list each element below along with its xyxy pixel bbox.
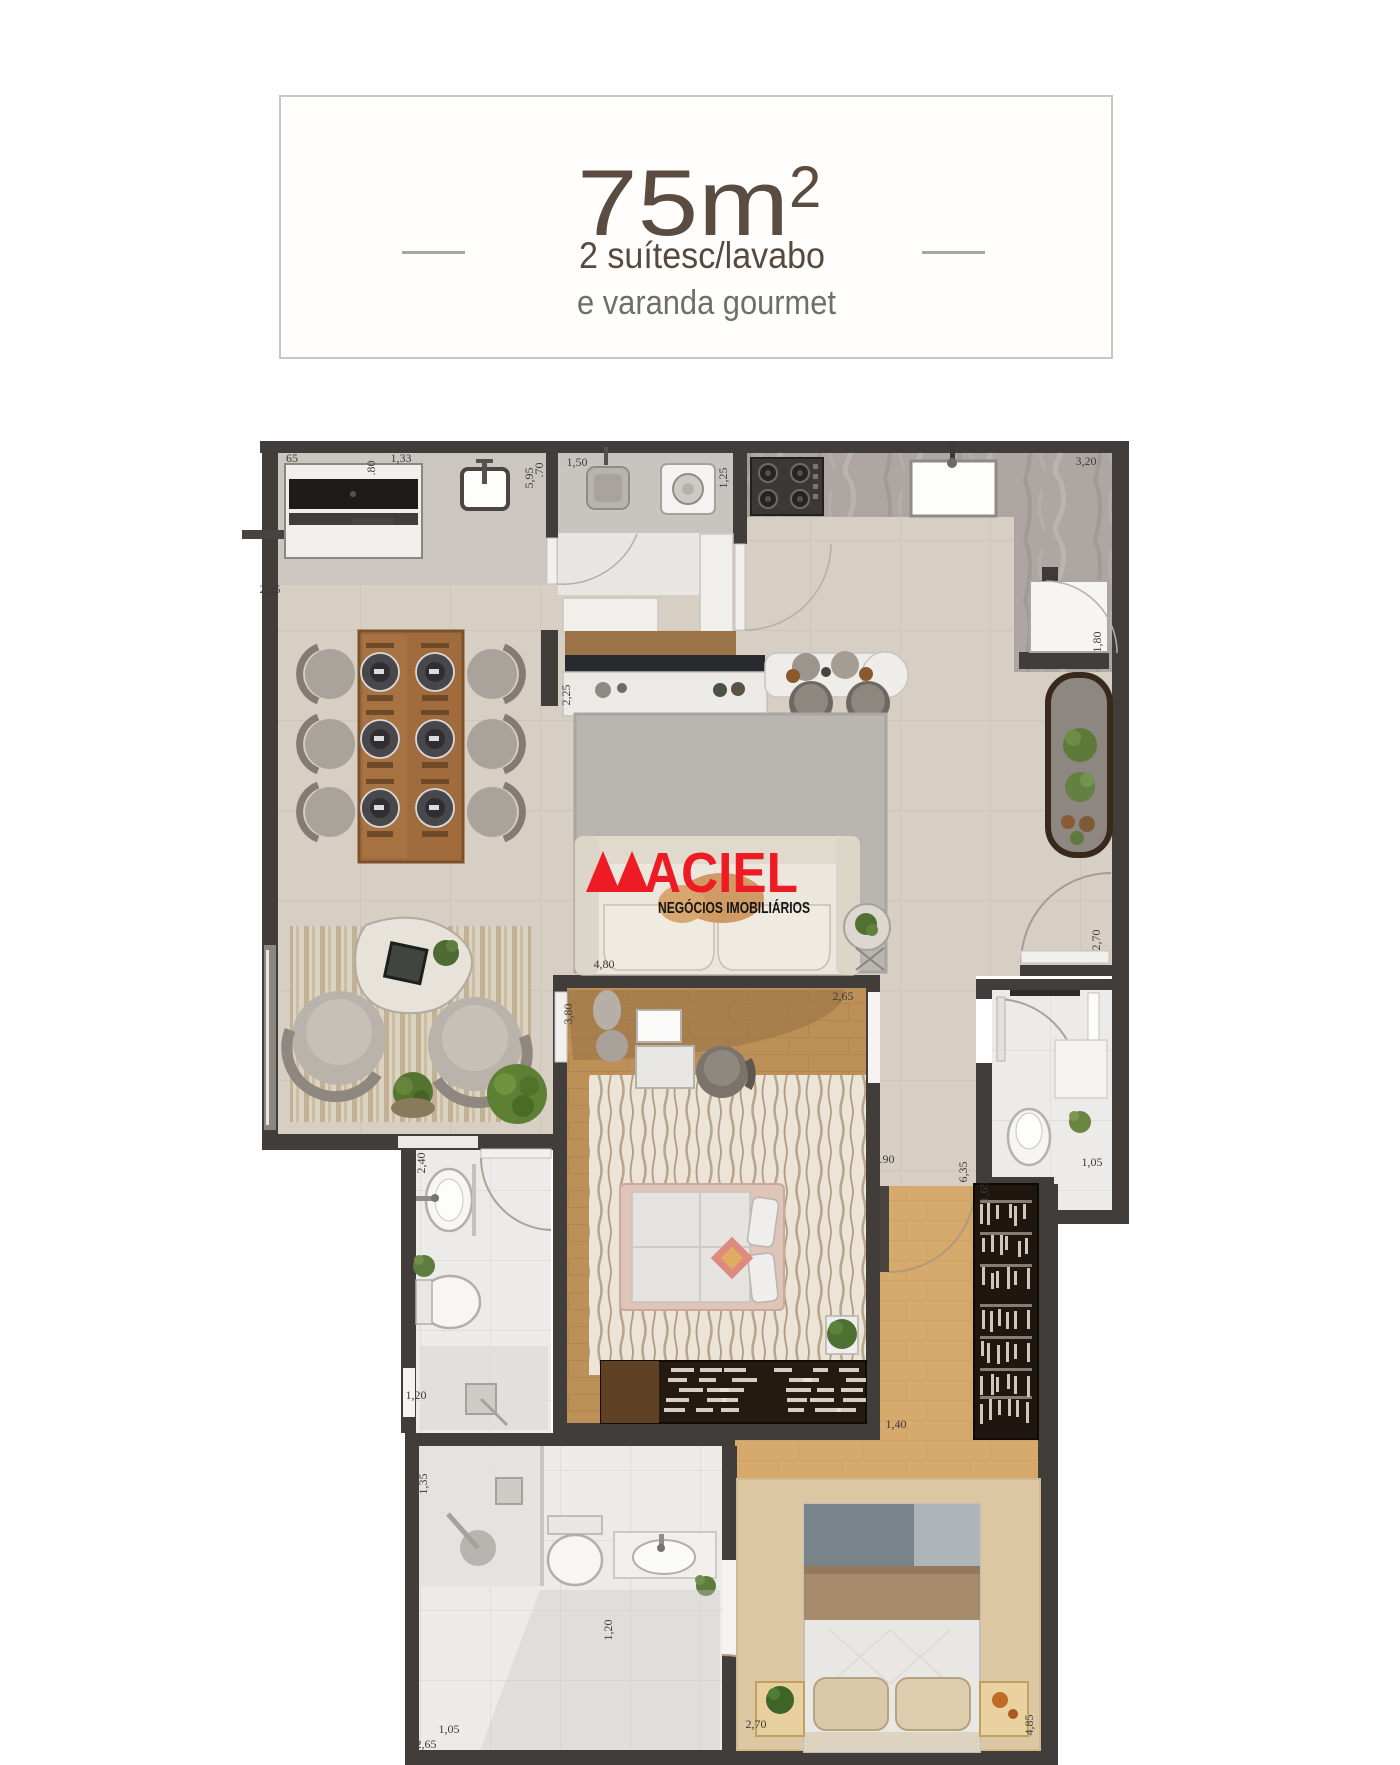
svg-text:3,80: 3,80 xyxy=(561,1004,575,1025)
svg-text:2,65: 2,65 xyxy=(416,1737,437,1751)
svg-text:1,35: 1,35 xyxy=(416,1474,430,1495)
svg-text:1,05: 1,05 xyxy=(439,1722,460,1736)
svg-text:1,33: 1,33 xyxy=(391,451,412,465)
svg-text:2,35: 2,35 xyxy=(260,582,281,596)
svg-text:ACIEL: ACIEL xyxy=(644,841,798,905)
svg-text:.80: .80 xyxy=(364,461,378,476)
svg-text:2,70: 2,70 xyxy=(1089,930,1103,951)
svg-text:1,65: 1,65 xyxy=(977,1182,991,1203)
svg-text:4,85: 4,85 xyxy=(1022,1715,1036,1736)
svg-text:1,05: 1,05 xyxy=(1082,1155,1103,1169)
svg-text:2,40: 2,40 xyxy=(414,1153,428,1174)
svg-text:3,20: 3,20 xyxy=(1076,454,1097,468)
svg-text:5,95: 5,95 xyxy=(522,468,536,489)
svg-text:e varanda gourmet: e varanda gourmet xyxy=(577,284,836,322)
svg-text:4,80: 4,80 xyxy=(594,957,615,971)
svg-text:2,70: 2,70 xyxy=(746,1717,767,1731)
svg-text:1,50: 1,50 xyxy=(567,455,588,469)
svg-text:2 suítesc/lavabo: 2 suítesc/lavabo xyxy=(579,235,825,276)
svg-text:.90: .90 xyxy=(880,1152,895,1166)
svg-text:1,20: 1,20 xyxy=(406,1388,427,1402)
svg-text:1,20: 1,20 xyxy=(601,1620,615,1641)
svg-text:65: 65 xyxy=(286,451,298,465)
svg-text:2,65: 2,65 xyxy=(833,989,854,1003)
svg-text:1,40: 1,40 xyxy=(886,1417,907,1431)
svg-text:6,35: 6,35 xyxy=(956,1162,970,1183)
svg-text:NEGÓCIOS IMOBILIÁRIOS: NEGÓCIOS IMOBILIÁRIOS xyxy=(658,898,810,917)
svg-text:2,25: 2,25 xyxy=(559,685,573,706)
svg-text:1,25: 1,25 xyxy=(716,468,730,489)
svg-text:1,80: 1,80 xyxy=(1090,632,1104,653)
